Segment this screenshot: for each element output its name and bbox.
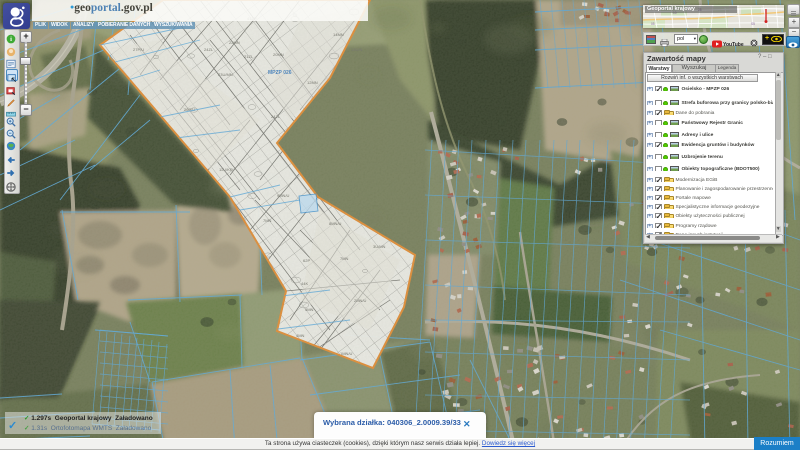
svg-text:i: i <box>10 36 12 43</box>
svg-text:05: 05 <box>651 22 655 26</box>
svg-text:YouTube: YouTube <box>723 42 744 48</box>
svg-text:S5: S5 <box>751 22 755 26</box>
